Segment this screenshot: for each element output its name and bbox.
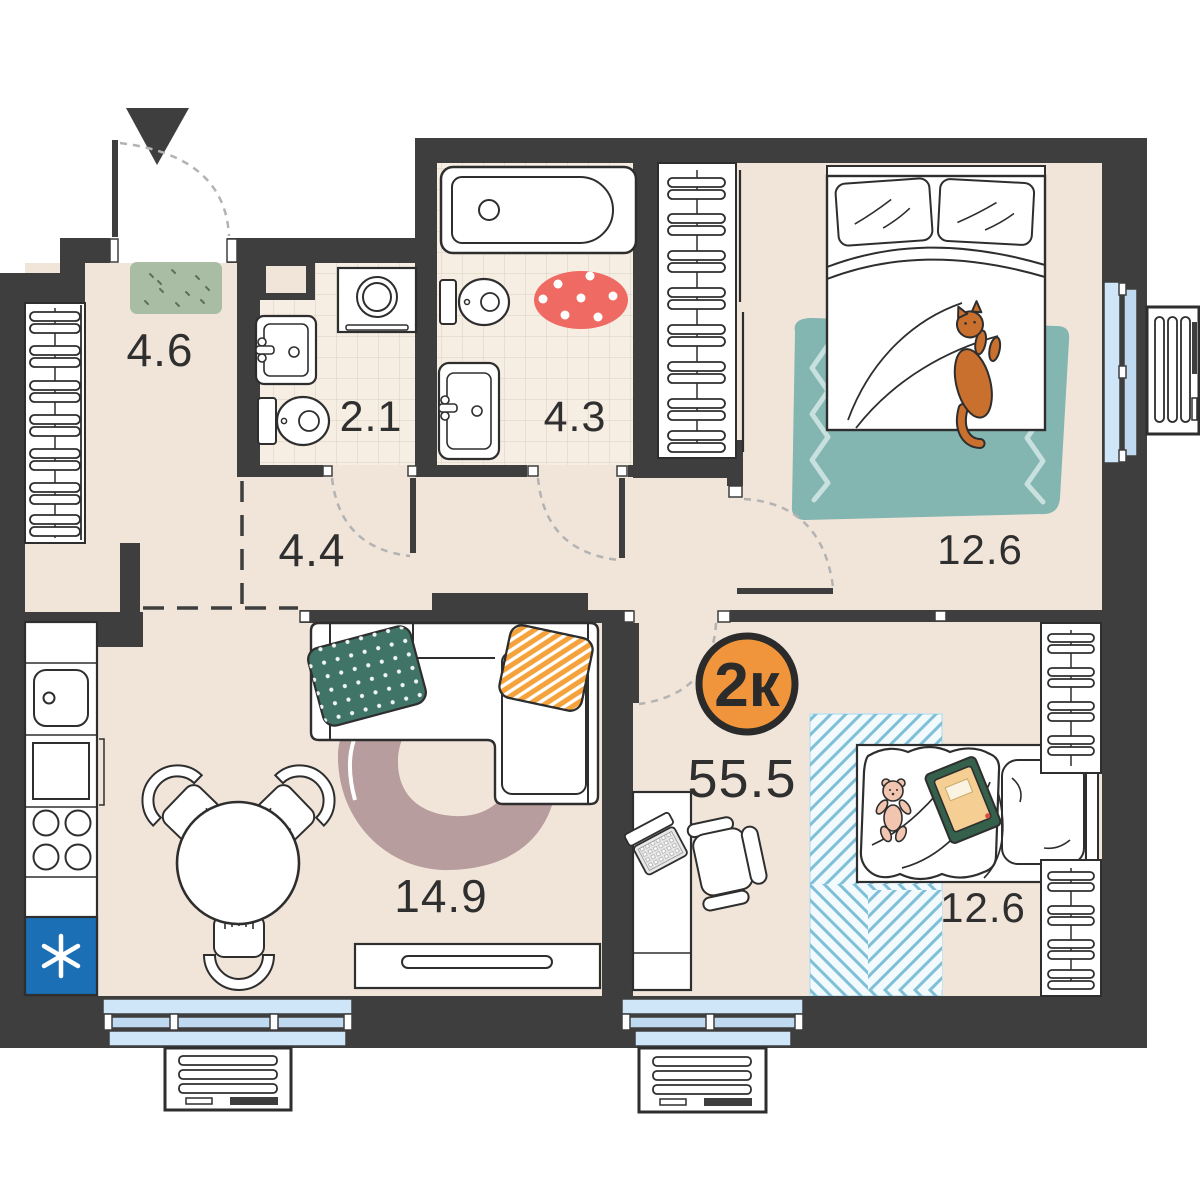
- wc-sink: [256, 316, 316, 384]
- wall-duct-inset: [266, 266, 306, 293]
- hallway-doormat: [130, 262, 222, 314]
- bathtub: [441, 167, 636, 253]
- radiator-bedroom-bottom: [639, 1048, 766, 1112]
- tv-stand: [355, 944, 600, 988]
- window-bedroom-bottom: [622, 999, 803, 1046]
- type-badge-label: 2к: [714, 651, 780, 720]
- window-bedroom-top: [1104, 282, 1137, 463]
- bath-toilet: [440, 279, 509, 325]
- room-label-hallway: 4.6: [127, 324, 194, 376]
- fridge: [25, 917, 97, 995]
- window-living: [103, 999, 352, 1046]
- bath-rug: [534, 271, 628, 329]
- bed-pillow: [937, 179, 1034, 246]
- total-area-label: 55.5: [687, 749, 796, 809]
- type-badge: 2к: [699, 636, 795, 732]
- bed-pillow: [1002, 760, 1084, 864]
- entrance-arrow: [126, 108, 189, 165]
- oven: [33, 743, 89, 799]
- entrance-door-arc: [120, 143, 229, 236]
- bath-sink: [439, 363, 499, 459]
- double-bed: [827, 166, 1045, 430]
- pillow-orange: [497, 623, 595, 713]
- room-label-bedroom-bottom: 12.6: [940, 884, 1026, 931]
- room-label-toilet: 2.1: [340, 393, 403, 441]
- bed-pillow: [835, 178, 933, 246]
- floorplan-page: 2к 55.5 4.6 2.1 4.3 4.4 12.6 14.9 12.6: [0, 0, 1200, 1200]
- dining-chair: [204, 915, 274, 990]
- kitchen-sink: [34, 670, 88, 726]
- radiator-living: [165, 1048, 291, 1110]
- hall-wardrobe-top: [658, 163, 743, 458]
- wc-toilet: [258, 397, 329, 445]
- floorplan: 2к 55.5 4.6 2.1 4.3 4.4 12.6 14.9 12.6: [0, 0, 1200, 1200]
- hallway-wardrobe: [25, 303, 85, 543]
- ac-unit: [1147, 307, 1199, 434]
- room-label-corridor: 4.4: [279, 524, 346, 576]
- room-label-bedroom-top: 12.6: [937, 526, 1023, 573]
- room-label-bathroom: 4.3: [544, 393, 607, 441]
- washing-machine: [338, 268, 416, 332]
- dining-table: [177, 802, 299, 924]
- tv: [402, 956, 552, 968]
- room-label-living: 14.9: [394, 870, 488, 922]
